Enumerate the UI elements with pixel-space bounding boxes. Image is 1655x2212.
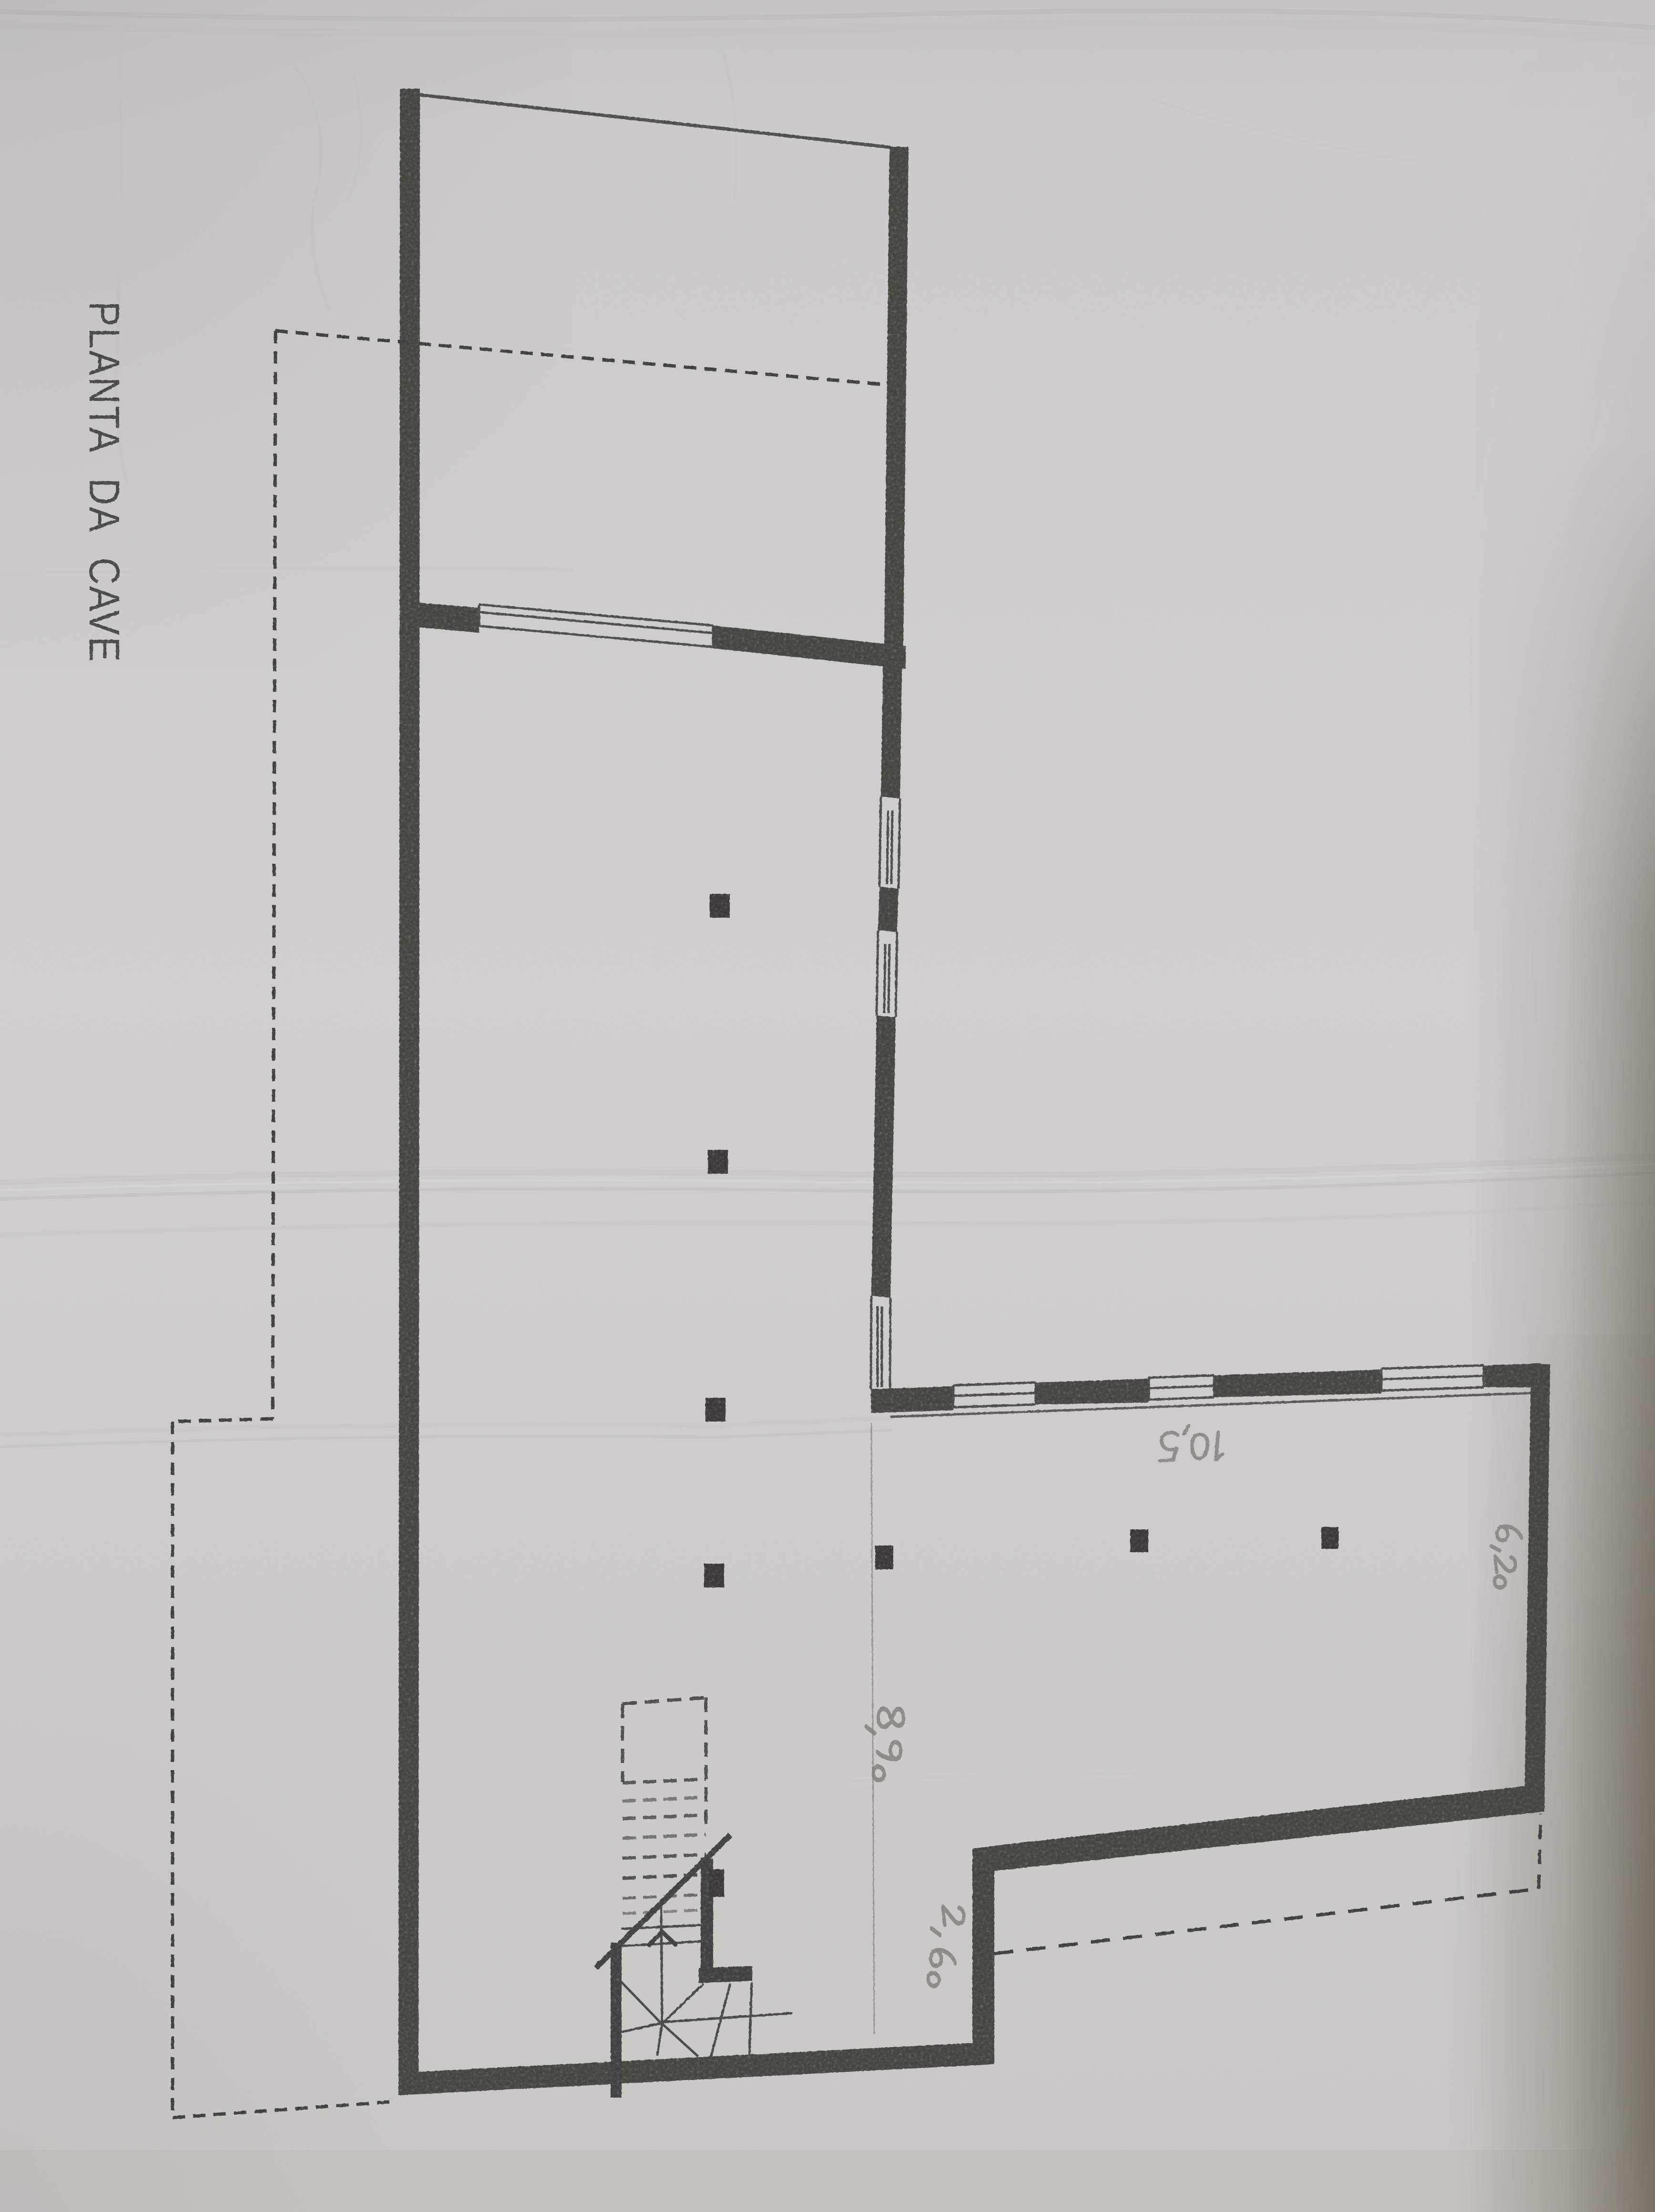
svg-text:PLANTA DA CAVE: PLANTA DA CAVE — [81, 301, 128, 663]
